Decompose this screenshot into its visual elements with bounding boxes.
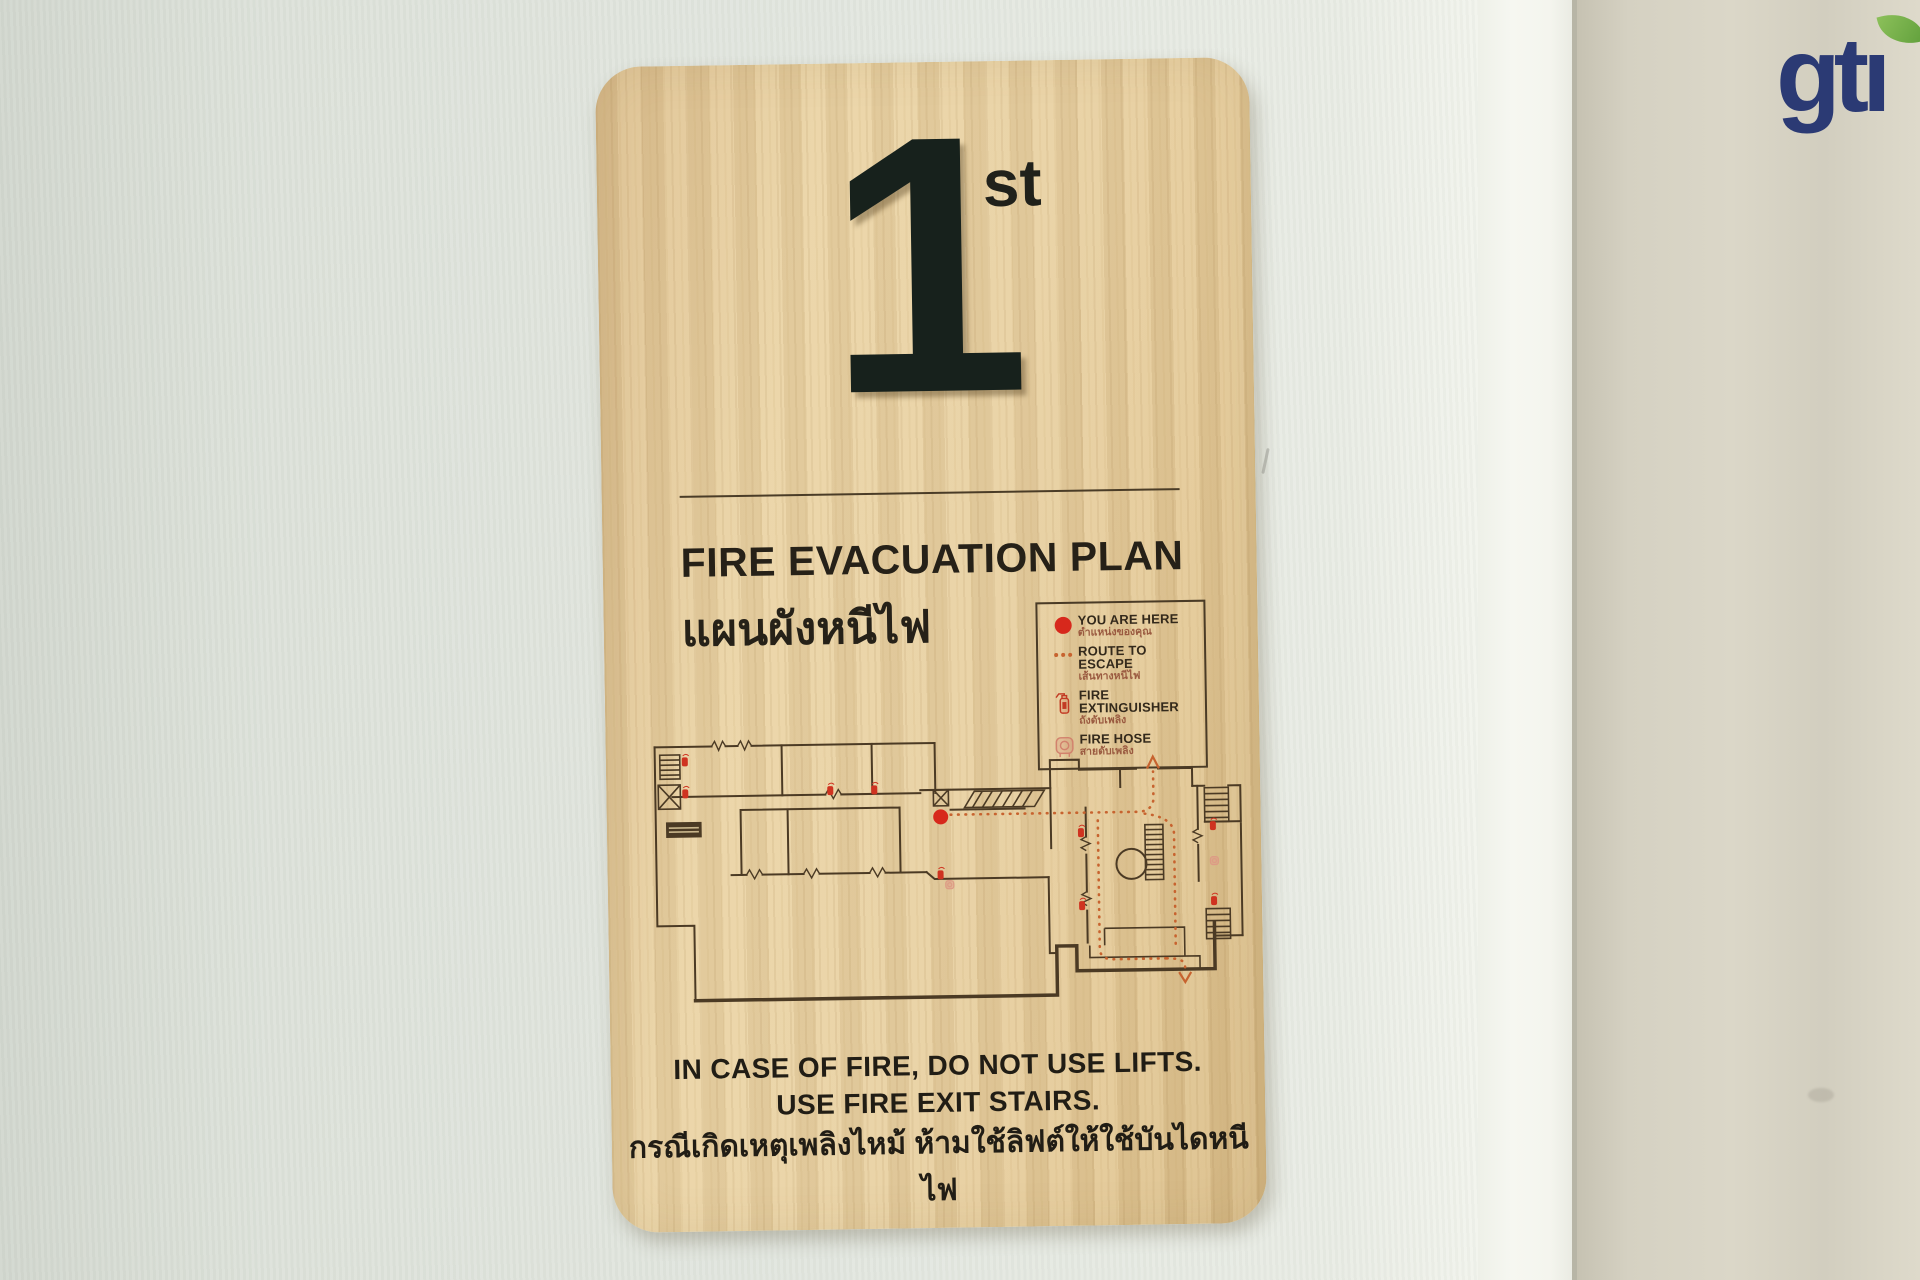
legend-label-th: ถังดับเพลิง (1079, 714, 1197, 727)
legend-label: ROUTE TO ESCAPE (1078, 642, 1196, 671)
legend-label: FIRE EXTINGUISHER (1079, 687, 1197, 716)
legend-row-you-are-here: YOU ARE HERE ตำแหน่งของคุณ (1048, 612, 1196, 639)
sign-title-th: แผนผังหนีไฟ (681, 590, 931, 666)
floor-number: 1 (823, 80, 1032, 449)
wall-white-column (1478, 0, 1574, 1280)
floor-suffix: st (982, 144, 1042, 221)
legend-label-th: ตำแหน่งของคุณ (1078, 626, 1179, 639)
gti-logo: gtı (1776, 8, 1920, 148)
gti-logo-text: gtı (1776, 22, 1885, 128)
stairs-lift-symbols (658, 746, 1231, 947)
you-are-here-marker (933, 809, 948, 824)
extinguisher-marks (682, 746, 1218, 916)
door-marks (711, 734, 1203, 912)
hose-marks (945, 857, 1218, 889)
sign-title-en: FIRE EVACUATION PLAN (680, 532, 1183, 587)
legend-row-extinguisher: FIRE EXTINGUISHER ถังดับเพลิง (1049, 687, 1198, 728)
route-dotted-line-icon (1054, 652, 1072, 656)
divider-line (680, 488, 1180, 498)
notice-line-1: IN CASE OF FIRE, DO NOT USE LIFTS. (610, 1045, 1264, 1087)
photo-scene: gtı 1 st FIRE EVACUATION PLAN แผนผังหนีไ… (0, 0, 1920, 1280)
you-are-here-dot (1054, 617, 1071, 634)
floor-plan-diagram (651, 730, 1247, 1016)
plan-walls-bold (694, 923, 1215, 1001)
legend-row-route: ROUTE TO ESCAPE เส้นทางหนีไฟ (1048, 642, 1197, 683)
wall-smudge-mark (1808, 1088, 1834, 1102)
fire-extinguisher-icon (1053, 690, 1075, 718)
legend-label-th: เส้นทางหนีไฟ (1078, 670, 1196, 683)
wall-right (1577, 0, 1920, 1280)
plan-exit-steps (1089, 927, 1200, 971)
fire-evacuation-sign: 1 st FIRE EVACUATION PLAN แผนผังหนีไฟ YO… (595, 57, 1267, 1233)
notice-thai: กรณีเกิดเหตุเพลิงไหม้ ห้ามใช้ลิฟต์ให้ใช้… (612, 1115, 1267, 1219)
